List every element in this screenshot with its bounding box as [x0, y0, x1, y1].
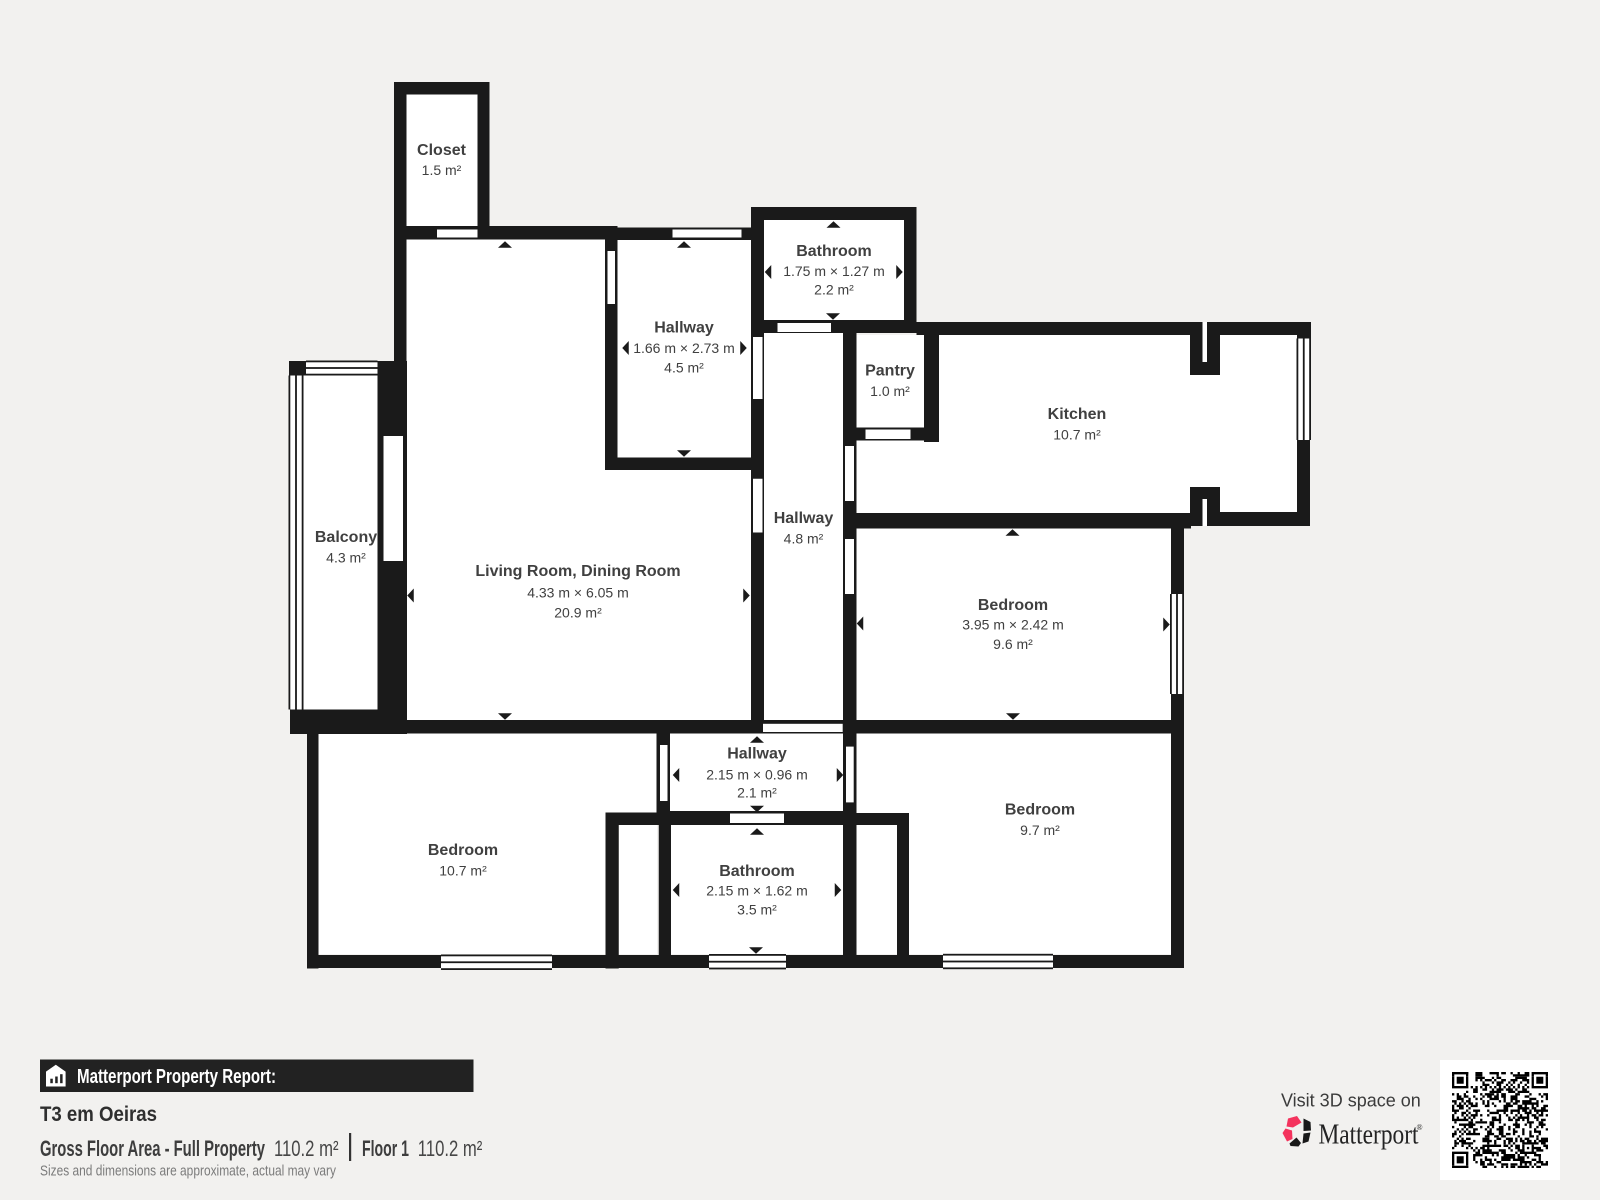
svg-text:Hallway: Hallway [774, 510, 834, 527]
svg-text:1.0 m²: 1.0 m² [870, 383, 910, 399]
svg-text:Visit 3D space on: Visit 3D space on [1281, 1090, 1421, 1110]
svg-text:110.2 m²: 110.2 m² [274, 1136, 339, 1161]
svg-text:3.95 m × 2.42 m: 3.95 m × 2.42 m [962, 617, 1064, 633]
svg-text:Matterport: Matterport [1319, 1119, 1419, 1151]
svg-text:Pantry: Pantry [865, 363, 915, 380]
svg-text:Bathroom: Bathroom [796, 243, 872, 260]
svg-text:2.15 m × 1.62 m: 2.15 m × 1.62 m [706, 883, 808, 899]
svg-text:®: ® [1417, 1123, 1423, 1132]
svg-text:1.66 m × 2.73 m: 1.66 m × 2.73 m [633, 340, 735, 356]
svg-text:3.5 m²: 3.5 m² [737, 902, 777, 918]
svg-text:T3 em Oeiras: T3 em Oeiras [40, 1103, 157, 1126]
svg-text:Gross Floor Area - Full Proper: Gross Floor Area - Full Property [40, 1136, 266, 1161]
svg-text:Bedroom: Bedroom [428, 842, 498, 859]
svg-text:Bedroom: Bedroom [1005, 802, 1075, 819]
svg-text:2.2 m²: 2.2 m² [814, 282, 854, 298]
svg-text:2.1 m²: 2.1 m² [737, 785, 777, 801]
svg-text:Bedroom: Bedroom [978, 597, 1048, 614]
svg-text:1.5 m²: 1.5 m² [422, 162, 462, 178]
svg-text:Floor 1: Floor 1 [362, 1136, 409, 1161]
svg-text:Closet: Closet [417, 142, 467, 159]
svg-text:10.7 m²: 10.7 m² [439, 863, 487, 879]
svg-text:20.9 m²: 20.9 m² [554, 605, 602, 621]
svg-text:Matterport Property Report:: Matterport Property Report: [77, 1066, 276, 1088]
svg-text:Balcony: Balcony [315, 529, 377, 546]
svg-text:110.2 m²: 110.2 m² [418, 1136, 483, 1161]
svg-text:4.3 m²: 4.3 m² [326, 550, 366, 566]
svg-text:2.15 m × 0.96 m: 2.15 m × 0.96 m [706, 767, 808, 783]
svg-text:Hallway: Hallway [727, 746, 787, 763]
svg-text:Living Room, Dining Room: Living Room, Dining Room [475, 563, 680, 580]
svg-text:9.7 m²: 9.7 m² [1020, 822, 1060, 838]
svg-text:1.75 m × 1.27 m: 1.75 m × 1.27 m [783, 263, 885, 279]
svg-text:4.33 m × 6.05 m: 4.33 m × 6.05 m [527, 585, 629, 601]
svg-text:Sizes and dimensions are appro: Sizes and dimensions are approximate, ac… [40, 1164, 337, 1180]
svg-text:Kitchen: Kitchen [1048, 406, 1107, 423]
svg-text:9.6 m²: 9.6 m² [993, 636, 1033, 652]
svg-text:4.5 m²: 4.5 m² [664, 360, 704, 376]
svg-text:Bathroom: Bathroom [719, 863, 795, 880]
svg-text:4.8 m²: 4.8 m² [784, 531, 824, 547]
svg-text:10.7 m²: 10.7 m² [1053, 427, 1101, 443]
svg-text:Hallway: Hallway [654, 320, 714, 337]
